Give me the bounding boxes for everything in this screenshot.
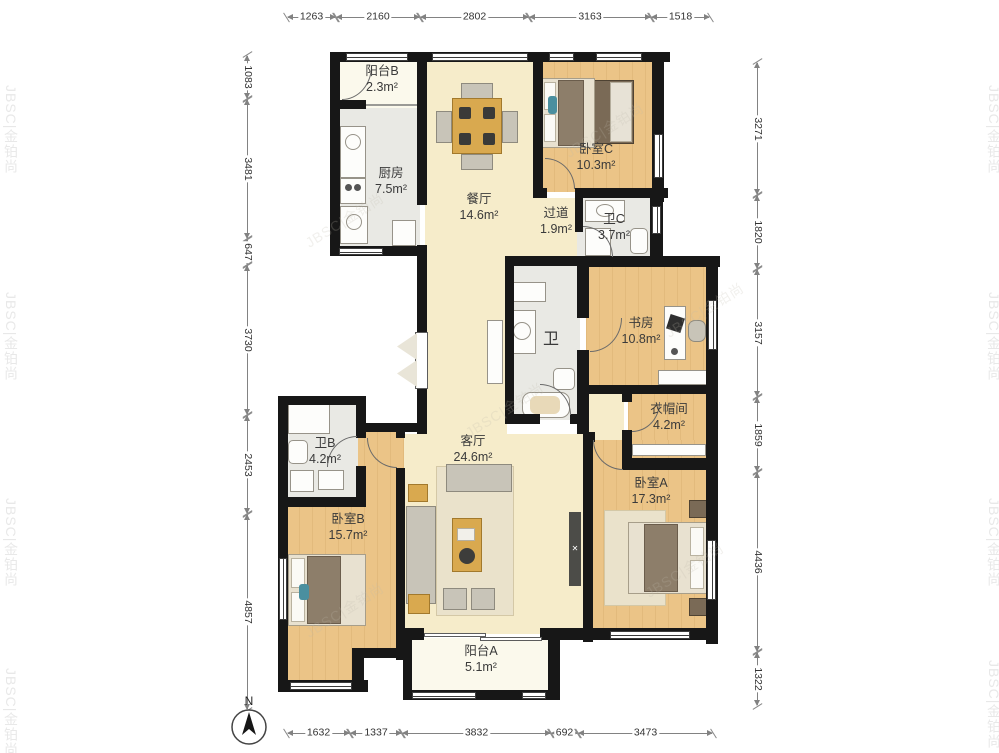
- room-label-kitchen: 厨房7.5m²: [375, 166, 407, 197]
- dimension-label: 2802: [461, 12, 488, 23]
- tv-screen: ✕: [569, 512, 581, 586]
- place-setting: [483, 133, 495, 145]
- void-notch: [364, 658, 406, 692]
- plant: [671, 348, 678, 355]
- wall-segment: [417, 60, 427, 205]
- blanket: [644, 524, 678, 592]
- dimension-top: 3163: [529, 12, 651, 23]
- dimension-label: 3271: [752, 115, 763, 142]
- wall-segment: [352, 648, 406, 658]
- room-area: 4.2m²: [653, 418, 685, 434]
- room-label-bath-b: 卫B4.2m²: [309, 436, 341, 467]
- dimension-left: 1083: [242, 55, 253, 99]
- wall-segment: [356, 423, 426, 432]
- room-name: 厨房: [378, 166, 403, 182]
- wall-segment: [583, 432, 593, 642]
- window: [290, 682, 352, 690]
- dimension-bottom: 1337: [350, 728, 402, 739]
- dimension-label: 3163: [576, 12, 603, 23]
- dimension-label: 2160: [364, 12, 391, 23]
- compass: N: [230, 695, 268, 751]
- dimension-left: 3481: [242, 99, 253, 239]
- stove: [340, 178, 366, 204]
- dimension-label: 1263: [298, 12, 325, 23]
- place-setting: [459, 133, 471, 145]
- kitchen-sink: [345, 134, 361, 150]
- dimension-left: 2453: [242, 415, 253, 514]
- watermark: JBSC|金铂尚: [1, 498, 21, 587]
- wall-segment: [706, 432, 718, 644]
- ottoman: [443, 588, 467, 610]
- dimension-label: 4857: [242, 598, 253, 625]
- wall-segment: [622, 458, 718, 470]
- wall-segment: [505, 256, 587, 266]
- room-name: 卫B: [315, 436, 336, 452]
- room-name: 书房: [628, 316, 653, 332]
- dimension-left: 4857: [242, 514, 253, 710]
- room-name: 卫: [543, 330, 559, 350]
- room-label-balcony-b: 阳台B2.3m²: [365, 64, 398, 95]
- window: [707, 540, 716, 600]
- washing-machine: [346, 214, 362, 230]
- window: [549, 53, 574, 61]
- dimension-bottom: 3473: [578, 728, 713, 739]
- entry-door-leaf: [397, 333, 417, 360]
- room-name: 衣帽间: [650, 402, 688, 418]
- room-area: 14.6m²: [460, 208, 499, 224]
- dining-chair: [502, 111, 518, 143]
- window: [522, 692, 546, 699]
- watermark: JBSC|金铂尚: [1, 292, 21, 381]
- hall-cabinet: [487, 320, 503, 384]
- wall-segment: [330, 52, 340, 256]
- wall-segment: [577, 256, 720, 267]
- wall-segment: [575, 198, 583, 232]
- room-name: 卧室C: [579, 142, 613, 158]
- window: [279, 558, 287, 620]
- dimension-label: 1322: [752, 665, 763, 692]
- wall-segment: [652, 52, 664, 202]
- wall-segment: [505, 414, 540, 424]
- washing-machine: [290, 470, 314, 492]
- room-area: 15.7m²: [329, 528, 368, 544]
- dimension-label: 1337: [362, 728, 389, 739]
- wall-segment: [533, 60, 543, 190]
- dimension-right: 4436: [752, 472, 763, 652]
- dimension-label: 647: [242, 241, 253, 263]
- wall-segment: [505, 262, 514, 422]
- dimension-label: 1859: [752, 421, 763, 448]
- side-table: [408, 484, 428, 502]
- room-name: 过道: [543, 206, 568, 222]
- room-area: 5.1m²: [465, 660, 497, 676]
- dimension-bottom: 3832: [402, 728, 551, 739]
- blanket: [307, 556, 341, 624]
- dimension-top: 2160: [336, 12, 420, 23]
- dimension-right: 3271: [752, 62, 763, 195]
- room-label-hallway: 过道1.9m²: [540, 206, 572, 237]
- dimension-label: 3473: [632, 728, 659, 739]
- dimension-top: 1263: [287, 12, 336, 23]
- dimension-label: 3481: [242, 155, 253, 182]
- wall-segment: [577, 264, 589, 318]
- wall-segment: [278, 396, 366, 405]
- window: [339, 248, 383, 255]
- room-label-study: 书房10.8m²: [622, 316, 661, 347]
- dimension-label: 4436: [752, 548, 763, 575]
- room-label-bedroom-b: 卧室B15.7m²: [329, 512, 368, 543]
- room-area: 3.7m²: [598, 228, 630, 244]
- room-area: 17.3m²: [632, 492, 671, 508]
- room-label-bath-center: 卫: [543, 330, 559, 350]
- fridge: [392, 220, 416, 246]
- watermark: JBSC|金铂尚: [1, 85, 21, 174]
- wall-segment: [417, 245, 427, 333]
- side-table: [408, 594, 430, 614]
- toilet: [553, 368, 575, 390]
- dining-chair: [436, 111, 452, 143]
- blanket: [558, 80, 584, 146]
- burner: [354, 184, 361, 191]
- dimension-label: 1632: [305, 728, 332, 739]
- ottoman: [471, 588, 495, 610]
- window: [432, 53, 528, 61]
- watermark: JBSC|金铂尚: [984, 660, 999, 749]
- wall-segment: [623, 432, 632, 442]
- room-area: 10.3m²: [577, 158, 616, 174]
- pillow: [690, 560, 704, 589]
- room-name: 阳台B: [365, 64, 398, 80]
- room-name: 卧室B: [331, 512, 364, 528]
- wall-segment: [622, 385, 718, 394]
- window: [654, 134, 663, 178]
- pillow: [690, 527, 704, 556]
- room-name: 阳台A: [464, 644, 497, 660]
- washer-drum: [513, 322, 531, 340]
- sliding-door-panel: [480, 637, 542, 641]
- wall-segment: [330, 100, 366, 109]
- loveseat: [446, 464, 512, 492]
- window: [412, 692, 476, 699]
- dining-chair: [461, 83, 493, 99]
- room-label-bath-c: 卫C3.7m²: [598, 212, 630, 243]
- watermark: JBSC|金铂尚: [1, 668, 21, 753]
- window: [596, 53, 642, 61]
- accent-pillow: [548, 96, 557, 114]
- room-area: 24.6m²: [454, 450, 493, 466]
- wall-segment: [533, 188, 547, 198]
- room-label-bedroom-c: 卧室C10.3m²: [577, 142, 616, 173]
- room-label-cloakroom: 衣帽间4.2m²: [650, 402, 688, 433]
- dimension-left: 3730: [242, 265, 253, 415]
- watermark: JBSC|金铂尚: [984, 498, 999, 587]
- dimension-right: 1322: [752, 652, 763, 706]
- sofa: [406, 506, 436, 604]
- sliding-door-panel: [424, 633, 486, 637]
- pillow: [544, 114, 556, 142]
- wall-segment: [622, 385, 632, 402]
- window: [708, 300, 717, 350]
- room-area: 1.9m²: [540, 222, 572, 238]
- dimension-label: 3832: [463, 728, 490, 739]
- bath-cabinet: [510, 282, 546, 302]
- toilet: [630, 228, 648, 254]
- burner: [345, 184, 352, 191]
- dimension-label: 3730: [242, 326, 253, 353]
- wall-segment: [278, 396, 288, 692]
- dimension-bottom: 1632: [287, 728, 350, 739]
- watermark: JBSC|金铂尚: [984, 85, 999, 174]
- room-name: 卫C: [603, 212, 625, 228]
- dimension-label: 1820: [752, 218, 763, 245]
- entry-door-leaf: [397, 360, 417, 387]
- room-area: 4.2m²: [309, 452, 341, 468]
- window: [610, 631, 690, 639]
- place-setting: [459, 107, 471, 119]
- dimension-top: 1518: [651, 12, 710, 23]
- room-label-bedroom-a: 卧室A17.3m²: [632, 476, 671, 507]
- window: [346, 53, 408, 61]
- floor-plan-page: ✕: [0, 0, 999, 753]
- room-label-dining: 餐厅14.6m²: [460, 192, 499, 223]
- dimension-label: 3157: [752, 319, 763, 346]
- dimension-top: 2802: [420, 12, 529, 23]
- compass-icon: [230, 708, 268, 746]
- room-label-balcony-a: 阳台A5.1m²: [464, 644, 497, 675]
- wardrobe-door: [610, 82, 632, 142]
- dimension-label: 1083: [242, 63, 253, 90]
- room-area: 2.3m²: [366, 80, 398, 96]
- tv-cabinet: ✕: [569, 512, 581, 586]
- room-area: 10.8m²: [622, 332, 661, 348]
- dimension-right: 3157: [752, 269, 763, 397]
- tray: [457, 528, 475, 541]
- room-area: 7.5m²: [375, 182, 407, 198]
- wall-segment: [396, 423, 405, 438]
- room-name: 餐厅: [466, 192, 491, 208]
- dimension-label: 692: [554, 728, 576, 739]
- watermark: JBSC|金铂尚: [984, 292, 999, 381]
- window: [652, 206, 661, 234]
- shower: [288, 404, 330, 434]
- dining-chair: [461, 154, 493, 170]
- wall-segment: [570, 414, 587, 424]
- sink-counter: [318, 470, 344, 490]
- room-name: 卧室A: [634, 476, 667, 492]
- room-name: 客厅: [460, 434, 485, 450]
- compass-north-label: N: [230, 695, 268, 708]
- dimension-label: 1518: [667, 12, 694, 23]
- toilet: [288, 440, 308, 464]
- decor: [459, 548, 475, 564]
- wall-segment: [278, 497, 366, 507]
- place-setting: [483, 107, 495, 119]
- desk-chair: [688, 320, 706, 342]
- dimension-right: 1859: [752, 397, 763, 472]
- closet-shelf: [632, 444, 706, 456]
- dimension-right: 1820: [752, 195, 763, 269]
- room-label-living: 客厅24.6m²: [454, 434, 493, 465]
- balcony-divider-line: [366, 104, 418, 106]
- accent-pillow: [299, 584, 309, 600]
- dimension-label: 2453: [242, 451, 253, 478]
